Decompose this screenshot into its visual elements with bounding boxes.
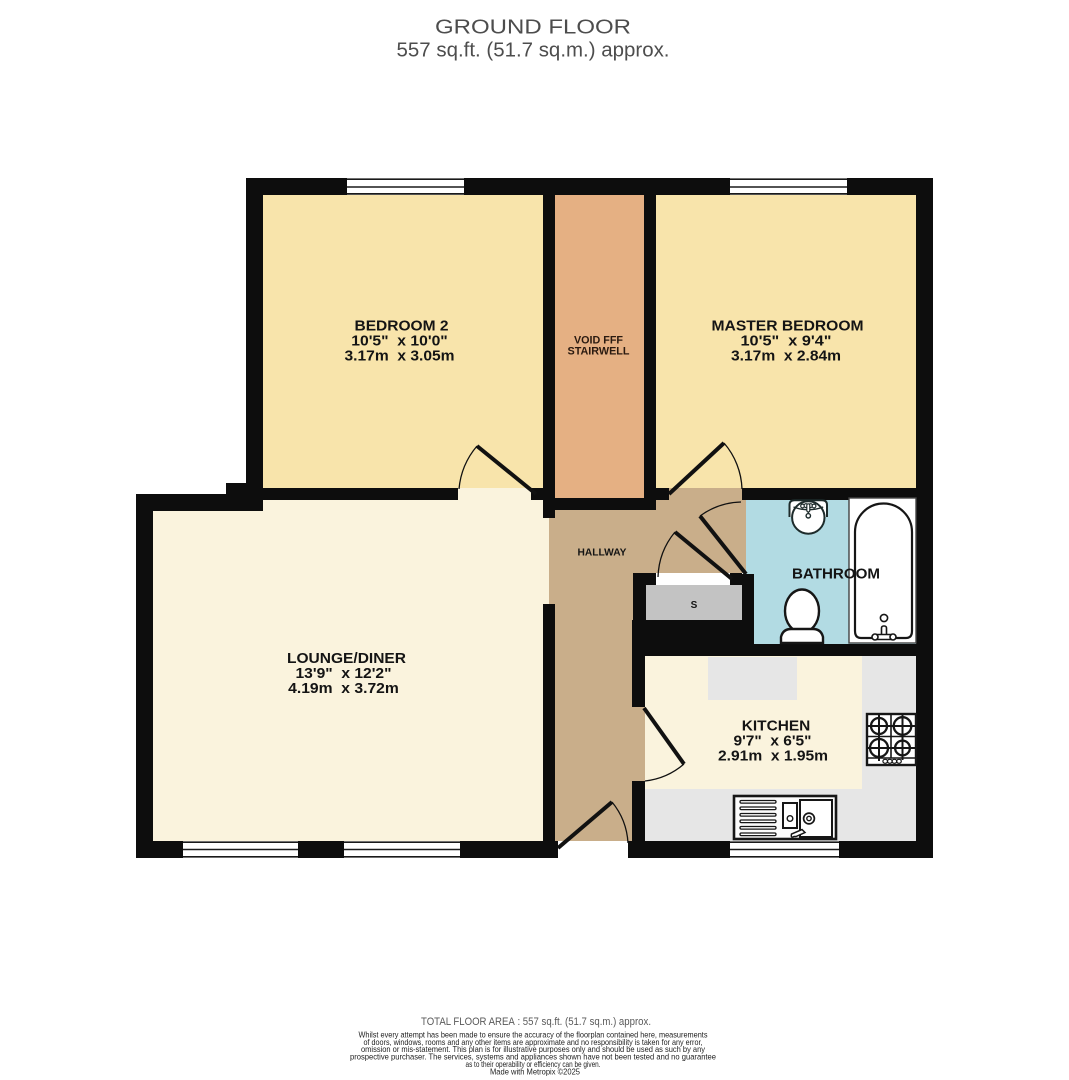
svg-text:TOTAL FLOOR AREA : 557 sq.ft.: TOTAL FLOOR AREA : 557 sq.ft. (51.7 sq.m… <box>421 1016 651 1028</box>
svg-text:557 sq.ft. (51.7 sq.m.) approx: 557 sq.ft. (51.7 sq.m.) approx. <box>397 39 670 62</box>
svg-text:3.17m x 2.84m: 3.17m x 2.84m <box>731 348 841 365</box>
svg-text:4.19m x 3.72m: 4.19m x 3.72m <box>288 680 399 697</box>
svg-text:Made with Metropix ©2025: Made with Metropix ©2025 <box>490 1066 580 1076</box>
svg-text:BATHROOM: BATHROOM <box>792 566 880 583</box>
svg-text:GROUND FLOOR: GROUND FLOOR <box>435 16 631 39</box>
svg-text:STAIRWELL: STAIRWELL <box>568 346 630 358</box>
svg-text:HALLWAY: HALLWAY <box>578 548 627 559</box>
svg-text:3.17m x 3.05m: 3.17m x 3.05m <box>345 348 455 365</box>
svg-text:S: S <box>691 600 698 611</box>
svg-text:2.91m x 1.95m: 2.91m x 1.95m <box>718 748 828 765</box>
